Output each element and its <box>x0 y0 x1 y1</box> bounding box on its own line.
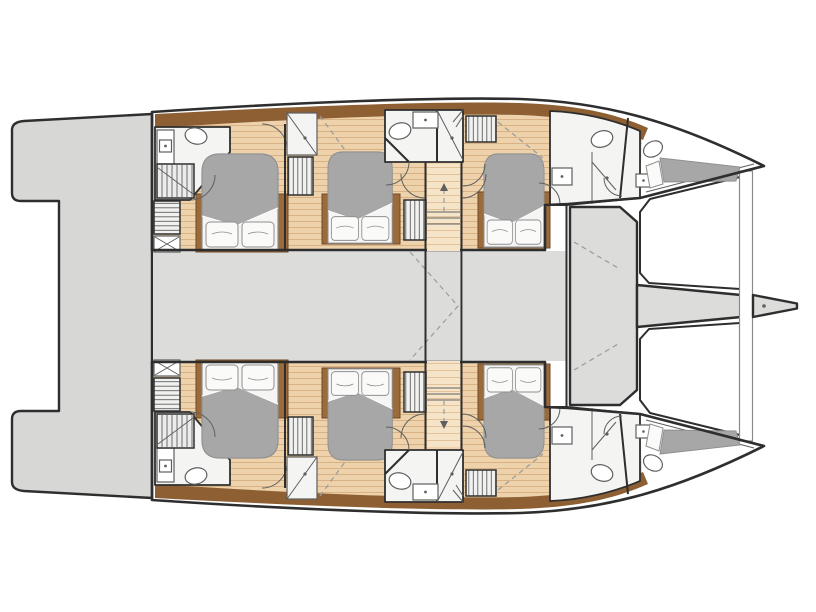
bowsprit-tip <box>753 295 797 317</box>
catamaran-floor-plan <box>0 0 816 612</box>
bowsprit-arm <box>637 285 741 327</box>
saloon-deck-fwd <box>463 251 566 361</box>
forward-cockpit-deck <box>570 207 637 405</box>
bow-crossbeam <box>740 171 753 441</box>
forward-cockpit <box>567 205 638 407</box>
aft-platform <box>12 114 152 498</box>
corridor-deck <box>426 251 461 361</box>
bridge-deck-saloon <box>153 251 566 361</box>
bowsprit-fitting <box>762 304 766 308</box>
saloon-deck-aft <box>153 251 425 361</box>
